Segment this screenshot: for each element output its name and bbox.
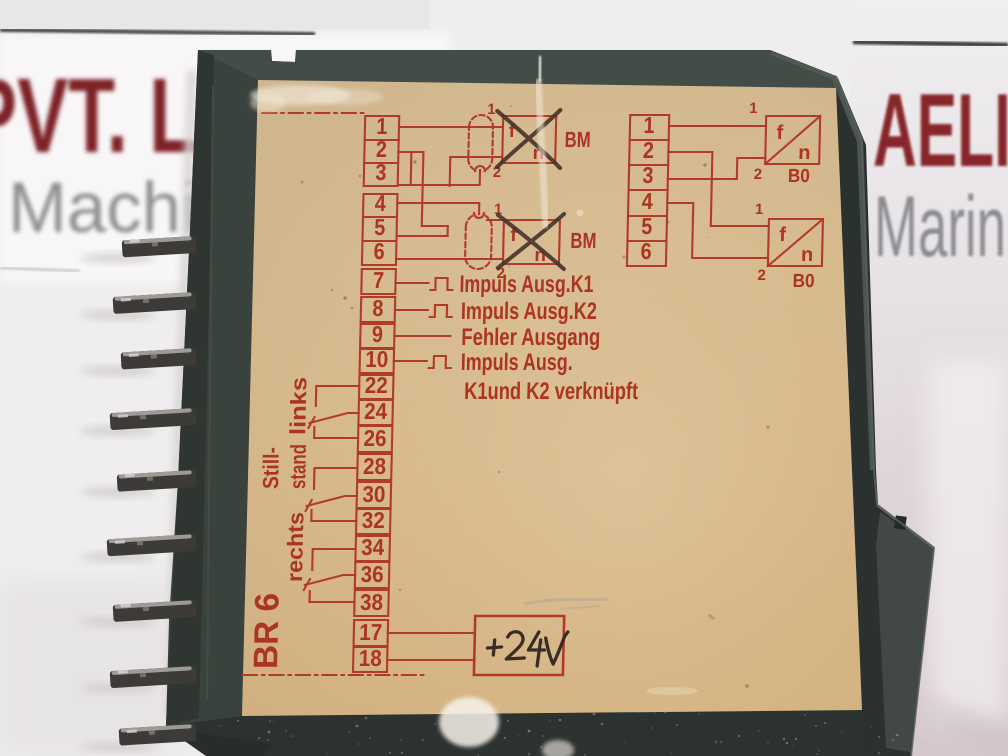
svg-text:BM: BM (570, 228, 597, 253)
svg-text:Marin: Marin (874, 179, 1006, 275)
svg-text:38: 38 (360, 589, 384, 615)
svg-text:Still-: Still- (258, 447, 284, 489)
svg-text:18: 18 (358, 645, 382, 671)
svg-text:f: f (776, 122, 783, 144)
svg-text:BM: BM (564, 127, 591, 152)
svg-text:B0: B0 (792, 271, 814, 292)
svg-text:4: 4 (375, 190, 387, 216)
svg-text:32: 32 (362, 507, 386, 533)
svg-text:6: 6 (640, 238, 652, 264)
svg-text:Impuls Ausg.K2: Impuls Ausg.K2 (461, 298, 598, 325)
svg-text:8: 8 (372, 295, 384, 321)
svg-text:36: 36 (360, 561, 384, 587)
svg-text:1: 1 (755, 201, 764, 218)
svg-text:22: 22 (365, 372, 389, 398)
svg-text:links: links (285, 377, 311, 435)
svg-text:7: 7 (373, 267, 385, 293)
svg-text:BR 6: BR 6 (247, 593, 287, 669)
svg-text:2: 2 (754, 166, 763, 183)
svg-text:B0: B0 (788, 166, 810, 187)
svg-text:28: 28 (363, 453, 387, 479)
svg-text:34: 34 (361, 534, 385, 560)
svg-text:5: 5 (641, 213, 653, 239)
svg-text:3: 3 (375, 159, 387, 185)
svg-text:17: 17 (359, 619, 383, 645)
svg-text:1: 1 (749, 100, 758, 117)
svg-text:K1und K2 verknüpft: K1und K2 verknüpft (464, 378, 639, 405)
svg-text:Impuls Ausg.: Impuls Ausg. (460, 349, 573, 376)
svg-text:10: 10 (365, 346, 389, 372)
svg-text:n: n (798, 142, 811, 164)
svg-text:30: 30 (362, 481, 386, 507)
svg-text:Fehler Ausgang: Fehler Ausgang (461, 324, 601, 351)
svg-text:2: 2 (757, 267, 766, 284)
svg-text:4: 4 (642, 188, 654, 214)
svg-text:n: n (801, 244, 814, 266)
svg-text:24: 24 (364, 398, 388, 424)
svg-text:Impuls Ausg.K1: Impuls Ausg.K1 (459, 271, 594, 298)
svg-text:AELI: AELI (873, 73, 1008, 189)
svg-text:f: f (779, 224, 786, 246)
svg-text:1: 1 (487, 101, 496, 118)
svg-text:6: 6 (373, 238, 385, 264)
svg-text:3: 3 (642, 162, 654, 188)
svg-text:9: 9 (372, 321, 384, 347)
svg-text:26: 26 (363, 425, 387, 451)
svg-text:rechts: rechts (282, 512, 309, 582)
svg-text:1: 1 (643, 112, 655, 138)
svg-text:stand: stand (285, 444, 311, 489)
svg-text:5: 5 (374, 214, 386, 240)
svg-text:2: 2 (643, 137, 655, 163)
svg-text:PVT. L: PVT. L (0, 57, 196, 175)
